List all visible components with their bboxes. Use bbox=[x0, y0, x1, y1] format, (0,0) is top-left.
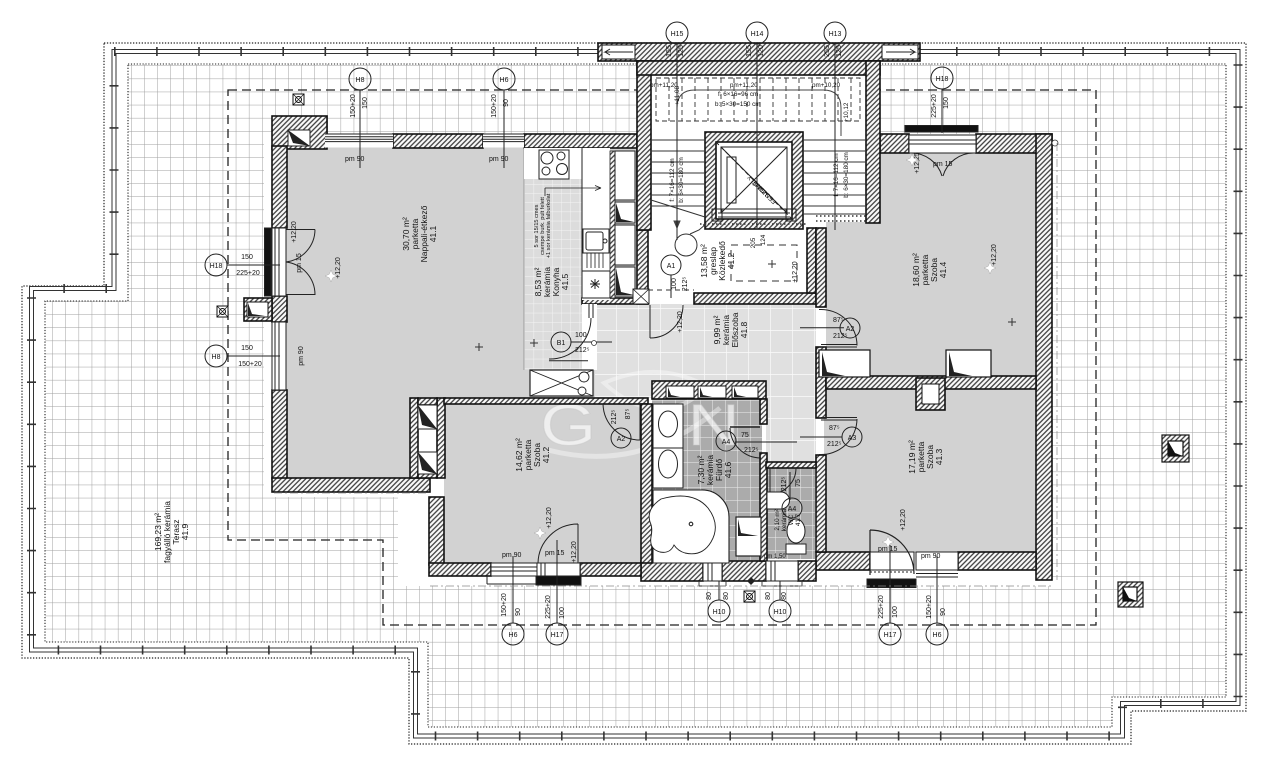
svg-text:150: 150 bbox=[241, 345, 253, 352]
svg-text:+1 sor kerámia falburkolat: +1 sor kerámia falburkolat bbox=[546, 193, 552, 258]
svg-text:H18: H18 bbox=[936, 76, 949, 83]
svg-text:B1: B1 bbox=[557, 340, 566, 347]
svg-text:f: 7×16=112 cm: f: 7×16=112 cm bbox=[833, 153, 840, 196]
svg-text:100: 100 bbox=[559, 607, 566, 619]
svg-text:pm+11,20: pm+11,20 bbox=[730, 82, 758, 89]
svg-text:H17: H17 bbox=[551, 632, 564, 639]
svg-text:87⁵: 87⁵ bbox=[829, 425, 840, 432]
svg-text:H10: H10 bbox=[774, 609, 787, 616]
svg-text:A2: A2 bbox=[617, 436, 626, 443]
svg-text:150+20: 150+20 bbox=[926, 595, 933, 619]
svg-text:80: 80 bbox=[723, 592, 730, 600]
svg-text:41.5: 41.5 bbox=[560, 273, 570, 290]
svg-text:41.2: 41.2 bbox=[541, 446, 551, 463]
svg-text:41.9: 41.9 bbox=[180, 523, 190, 540]
svg-text:2,10 m²: 2,10 m² bbox=[774, 509, 781, 530]
svg-text:212⁵: 212⁵ bbox=[744, 447, 759, 454]
svg-text:N: N bbox=[688, 393, 740, 457]
svg-text:f: 7×16=112 cm: f: 7×16=112 cm bbox=[669, 158, 676, 201]
svg-text:150+20: 150+20 bbox=[491, 94, 498, 118]
svg-text:225+20: 225+20 bbox=[878, 595, 885, 619]
svg-text:pm 90: pm 90 bbox=[345, 156, 365, 163]
svg-text:155: 155 bbox=[666, 45, 673, 57]
svg-text:f: 6×16=96 cm: f: 6×16=96 cm bbox=[718, 91, 758, 98]
svg-text:+10,12: +10,12 bbox=[843, 102, 850, 122]
svg-text:155: 155 bbox=[746, 45, 753, 57]
svg-text:pm 90: pm 90 bbox=[921, 553, 941, 560]
svg-text:212⁵: 212⁵ bbox=[833, 333, 848, 340]
svg-text:100: 100 bbox=[575, 332, 587, 339]
svg-text:pm 90: pm 90 bbox=[489, 156, 509, 163]
svg-text:H17: H17 bbox=[884, 632, 897, 639]
svg-text:41.7: 41.7 bbox=[795, 513, 802, 526]
svg-text:120: 120 bbox=[758, 45, 765, 57]
svg-text:124: 124 bbox=[760, 234, 767, 245]
svg-text:A2: A2 bbox=[846, 326, 855, 333]
svg-text:H14: H14 bbox=[751, 31, 764, 38]
svg-text:150+20: 150+20 bbox=[501, 593, 508, 617]
svg-text:±12,20: ±12,20 bbox=[792, 261, 799, 282]
svg-text:150: 150 bbox=[943, 97, 950, 109]
svg-text:H8: H8 bbox=[212, 354, 221, 361]
svg-text:212⁵: 212⁵ bbox=[781, 477, 788, 492]
svg-text:87⁵: 87⁵ bbox=[625, 409, 632, 420]
svg-text:125: 125 bbox=[678, 45, 685, 57]
svg-text:150+20: 150+20 bbox=[238, 361, 262, 368]
svg-text:150+20: 150+20 bbox=[350, 94, 357, 118]
svg-text:41.3: 41.3 bbox=[934, 448, 944, 465]
svg-text:pm 90: pm 90 bbox=[298, 346, 305, 366]
svg-text:212⁵: 212⁵ bbox=[575, 347, 590, 354]
svg-text:b: 6×30=180 cm: b: 6×30=180 cm bbox=[843, 152, 850, 198]
svg-text:H6: H6 bbox=[509, 632, 518, 639]
svg-text:41.1: 41.1 bbox=[428, 225, 438, 242]
svg-text:41.6: 41.6 bbox=[723, 461, 733, 478]
svg-text:kerámia: kerámia bbox=[781, 508, 788, 531]
svg-text:H15: H15 bbox=[671, 31, 684, 38]
svg-text:212⁵: 212⁵ bbox=[827, 441, 842, 448]
svg-text:+12,20: +12,20 bbox=[571, 541, 578, 563]
svg-text:pm 15: pm 15 bbox=[545, 550, 565, 557]
svg-text:150: 150 bbox=[362, 97, 369, 109]
svg-text:90: 90 bbox=[503, 99, 510, 107]
svg-text:WC: WC bbox=[788, 514, 795, 525]
svg-text:pm 15: pm 15 bbox=[296, 253, 303, 273]
svg-text:+11,08: +11,08 bbox=[674, 86, 681, 105]
svg-text:H6: H6 bbox=[933, 632, 942, 639]
svg-text:225+20: 225+20 bbox=[931, 94, 938, 118]
svg-text:pm+10,20: pm+10,20 bbox=[812, 82, 841, 89]
svg-text:90: 90 bbox=[515, 608, 522, 616]
svg-text:H6: H6 bbox=[500, 77, 509, 84]
svg-text:212⁵: 212⁵ bbox=[682, 277, 689, 292]
svg-text:A3: A3 bbox=[848, 435, 857, 442]
svg-text:41.8: 41.8 bbox=[739, 321, 749, 338]
svg-text:80: 80 bbox=[781, 592, 788, 600]
svg-text:+12,20: +12,20 bbox=[546, 507, 553, 529]
svg-text:pm 15: pm 15 bbox=[933, 161, 953, 168]
svg-text:b: 5×30=150 cm: b: 5×30=150 cm bbox=[715, 101, 761, 108]
svg-text:90: 90 bbox=[940, 608, 947, 616]
svg-text:pm 90: pm 90 bbox=[502, 552, 522, 559]
svg-text:pm 1,50: pm 1,50 bbox=[764, 554, 786, 560]
svg-text:A1: A1 bbox=[667, 263, 676, 270]
svg-text:H8: H8 bbox=[356, 77, 365, 84]
svg-text:150: 150 bbox=[241, 254, 253, 261]
svg-text:80: 80 bbox=[706, 592, 713, 600]
svg-text:87⁵: 87⁵ bbox=[833, 317, 844, 324]
svg-text:+12,20: +12,20 bbox=[291, 221, 298, 243]
svg-text:255: 255 bbox=[824, 45, 831, 57]
svg-text:100: 100 bbox=[671, 278, 678, 290]
svg-text:75: 75 bbox=[741, 432, 749, 439]
svg-text:A4: A4 bbox=[722, 439, 731, 446]
svg-text:+12,25: +12,25 bbox=[914, 152, 921, 174]
svg-text:205: 205 bbox=[750, 237, 757, 248]
svg-text:+12,20: +12,20 bbox=[900, 509, 907, 531]
svg-text:100: 100 bbox=[892, 606, 899, 618]
svg-text:125: 125 bbox=[836, 45, 843, 57]
svg-text:212⁵: 212⁵ bbox=[611, 410, 618, 425]
svg-text:H10: H10 bbox=[713, 609, 726, 616]
svg-text:41.4: 41.4 bbox=[938, 261, 948, 278]
svg-text:225+20: 225+20 bbox=[236, 270, 260, 277]
svg-text:H13: H13 bbox=[829, 31, 842, 38]
svg-text:+12,20: +12,20 bbox=[991, 244, 998, 266]
svg-text:b: 6×30=180 cm: b: 6×30=180 cm bbox=[678, 157, 685, 203]
svg-text:225+20: 225+20 bbox=[545, 595, 552, 619]
svg-text:80: 80 bbox=[765, 592, 772, 600]
svg-text:H18: H18 bbox=[210, 263, 223, 270]
svg-text:A4: A4 bbox=[788, 506, 797, 513]
svg-text:+12,20: +12,20 bbox=[677, 311, 684, 333]
svg-text:75: 75 bbox=[795, 479, 802, 487]
